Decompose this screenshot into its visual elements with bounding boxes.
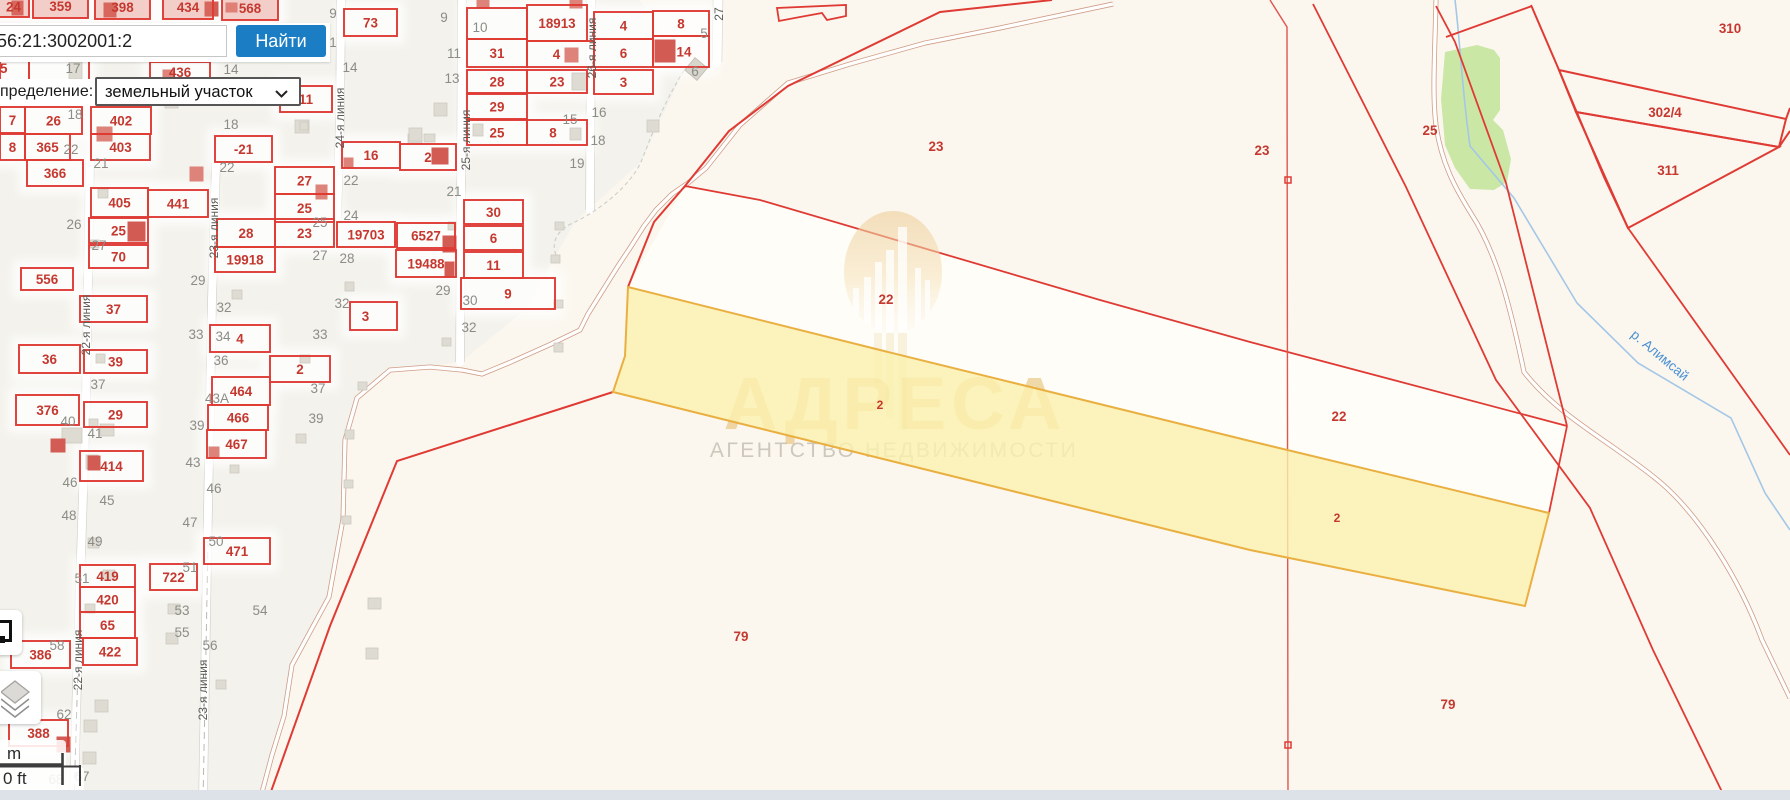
svg-text:398: 398 [111,0,134,15]
svg-text:419: 419 [96,569,118,584]
svg-text:47: 47 [182,515,197,530]
svg-text:33: 33 [188,327,203,342]
svg-text:359: 359 [49,0,71,14]
svg-text:22: 22 [219,160,234,175]
svg-text:24-я линия: 24-я линия [333,88,347,149]
svg-text:388: 388 [27,726,50,741]
svg-text:466: 466 [227,411,249,426]
svg-text:405: 405 [108,196,131,211]
svg-text:23: 23 [1255,143,1270,158]
svg-text:8: 8 [549,126,557,141]
svg-text:32: 32 [461,320,476,335]
svg-text:19918: 19918 [226,253,264,268]
svg-text:26: 26 [46,114,61,129]
svg-text:568: 568 [239,1,262,16]
svg-text:16: 16 [364,148,379,163]
svg-text:51: 51 [74,571,89,586]
svg-text:37: 37 [310,381,325,396]
svg-text:420: 420 [96,593,118,608]
svg-text:79: 79 [1441,697,1456,712]
svg-text:414: 414 [100,459,123,474]
svg-text:51: 51 [182,560,197,575]
svg-text:23-я линия: 23-я линия [196,660,210,721]
svg-text:33: 33 [312,327,327,342]
svg-text:6: 6 [691,64,699,79]
svg-text:386: 386 [29,648,51,663]
svg-text:28: 28 [339,251,354,266]
svg-text:26-я линия: 26-я линия [585,18,599,79]
svg-text:403: 403 [109,140,131,155]
svg-text:39: 39 [189,418,204,433]
svg-text:49: 49 [87,534,102,549]
svg-text:31: 31 [490,46,505,61]
svg-text:22: 22 [343,173,358,188]
svg-text:79: 79 [734,629,749,644]
svg-text:29: 29 [435,283,450,298]
svg-text:3: 3 [620,75,627,90]
svg-text:25: 25 [111,224,126,239]
svg-text:302/4: 302/4 [1648,105,1682,120]
svg-text:62: 62 [56,707,71,722]
svg-text:3: 3 [362,309,369,324]
svg-text:2: 2 [877,398,884,412]
svg-text:21: 21 [93,156,108,171]
svg-text:18913: 18913 [538,16,575,31]
svg-text:32: 32 [216,300,231,315]
svg-text:2: 2 [424,150,431,165]
svg-text:1: 1 [329,35,337,50]
svg-text:2: 2 [1334,511,1341,525]
svg-text:14: 14 [223,62,239,77]
svg-text:365: 365 [36,140,59,155]
svg-text:27: 27 [297,174,312,189]
svg-text:65: 65 [100,618,115,633]
svg-text:402: 402 [110,114,132,129]
svg-text:441: 441 [167,197,190,212]
svg-text:27: 27 [91,238,106,253]
svg-text:18: 18 [590,133,605,148]
svg-text:25: 25 [312,215,327,230]
svg-text:11: 11 [447,46,461,61]
svg-text:24: 24 [343,208,359,223]
svg-text:41: 41 [87,426,102,441]
svg-text:73: 73 [363,16,378,31]
svg-text:36: 36 [42,352,57,367]
svg-text:19488: 19488 [407,257,445,272]
svg-text:48: 48 [61,508,76,523]
svg-text:25-я линия: 25-я линия [459,110,473,171]
svg-text:25: 25 [490,126,505,141]
svg-text:4: 4 [236,332,244,347]
svg-text:471: 471 [226,544,249,559]
svg-text:25: 25 [1423,123,1438,138]
svg-text:21: 21 [446,184,461,199]
svg-text:22: 22 [1332,409,1347,424]
svg-text:311: 311 [1657,163,1679,178]
svg-text:422: 422 [99,645,121,660]
svg-text:23: 23 [297,226,312,241]
svg-text:70: 70 [111,250,126,265]
svg-text:37: 37 [106,302,121,317]
svg-text:9: 9 [329,6,337,21]
svg-text:27: 27 [312,248,327,263]
svg-text:30: 30 [486,205,501,220]
svg-text:8: 8 [677,17,685,32]
svg-text:376: 376 [36,403,58,418]
svg-text:464: 464 [230,384,253,399]
svg-text:43: 43 [185,455,200,470]
svg-text:467: 467 [225,437,247,452]
svg-text:45: 45 [99,493,114,508]
svg-text:30: 30 [462,293,477,308]
svg-text:8: 8 [9,140,17,155]
svg-text:366: 366 [44,166,66,181]
svg-text:722: 722 [162,570,184,585]
svg-text:10: 10 [472,20,487,35]
svg-text:7: 7 [9,113,16,128]
svg-text:29: 29 [108,408,123,423]
svg-text:24: 24 [6,0,21,15]
svg-text:9: 9 [440,10,448,25]
svg-text:23: 23 [929,139,944,154]
svg-text:556: 556 [36,272,58,287]
svg-text:19703: 19703 [347,228,384,243]
svg-text:22-я линия: 22-я линия [71,630,85,691]
svg-text:5: 5 [700,26,708,41]
svg-text:4: 4 [620,19,628,34]
svg-text:2: 2 [296,362,303,377]
svg-text:23: 23 [550,75,565,90]
svg-text:39: 39 [108,355,123,370]
svg-text:14: 14 [342,60,358,75]
svg-text:22: 22 [63,142,78,157]
svg-text:-21: -21 [234,142,254,157]
svg-text:40: 40 [60,414,75,429]
svg-text:28: 28 [490,75,505,90]
svg-text:29: 29 [190,273,205,288]
svg-text:14: 14 [677,45,692,60]
svg-text:434: 434 [177,0,200,15]
svg-text:11: 11 [299,92,314,107]
svg-text:6527: 6527 [411,229,441,244]
svg-text:37: 37 [90,377,105,392]
svg-text:6: 6 [490,231,497,246]
svg-text:50: 50 [208,534,223,549]
svg-text:6: 6 [620,46,627,61]
svg-text:55: 55 [174,625,189,640]
svg-text:13: 13 [444,71,459,86]
svg-text:26: 26 [66,217,81,232]
svg-text:9: 9 [504,287,511,302]
svg-text:39: 39 [308,411,323,426]
svg-text:46: 46 [62,475,77,490]
svg-text:27: 27 [712,7,726,21]
svg-text:18: 18 [223,117,238,132]
svg-text:22-я линия: 22-я линия [79,295,93,356]
svg-text:32: 32 [334,296,349,311]
svg-text:22: 22 [879,292,894,307]
svg-text:4: 4 [553,47,561,62]
svg-text:15: 15 [562,112,577,127]
svg-text:53: 53 [174,603,189,618]
svg-text:16: 16 [591,105,606,120]
svg-text:46: 46 [206,481,221,496]
svg-text:54: 54 [252,603,268,618]
svg-text:34: 34 [215,329,231,344]
svg-text:25: 25 [297,201,312,216]
svg-text:11: 11 [486,258,501,273]
svg-text:28: 28 [239,226,254,241]
svg-text:58: 58 [49,638,64,653]
svg-text:29: 29 [490,100,505,115]
svg-text:19: 19 [569,156,584,171]
svg-text:56: 56 [202,638,217,653]
svg-text:36: 36 [213,353,228,368]
svg-text:18: 18 [67,107,82,122]
svg-text:23-я линия: 23-я линия [207,198,221,259]
svg-text:310: 310 [1719,21,1741,36]
svg-text:43А: 43А [205,391,229,406]
svg-text:25: 25 [0,61,8,76]
svg-text:17: 17 [65,61,80,76]
